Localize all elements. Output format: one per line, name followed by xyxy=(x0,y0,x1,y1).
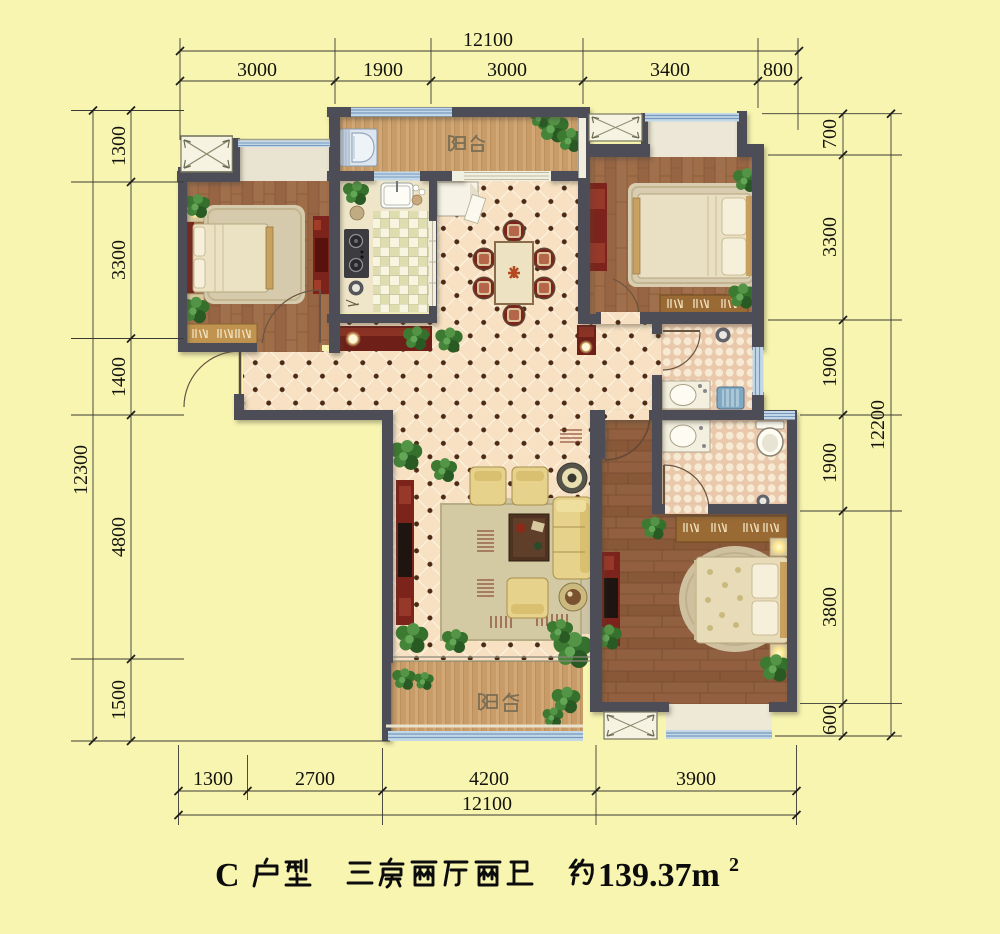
svg-text:12200: 12200 xyxy=(867,400,889,450)
svg-text:3800: 3800 xyxy=(819,587,841,627)
svg-text:4800: 4800 xyxy=(108,517,130,557)
svg-text:1400: 1400 xyxy=(108,357,130,397)
svg-text:3300: 3300 xyxy=(819,217,841,257)
svg-text:3300: 3300 xyxy=(108,240,130,280)
svg-text:C: C xyxy=(215,857,240,894)
svg-text:3000: 3000 xyxy=(487,59,527,81)
svg-text:1300: 1300 xyxy=(193,768,233,790)
svg-text:1300: 1300 xyxy=(108,126,130,166)
svg-text:4200: 4200 xyxy=(469,768,509,790)
svg-text:800: 800 xyxy=(763,59,793,81)
svg-text:600: 600 xyxy=(819,705,841,735)
svg-text:139.37m: 139.37m xyxy=(598,857,720,894)
svg-text:1900: 1900 xyxy=(819,347,841,387)
svg-text:12100: 12100 xyxy=(463,29,513,51)
svg-text:2700: 2700 xyxy=(295,768,335,790)
svg-text:1900: 1900 xyxy=(363,59,403,81)
svg-text:1900: 1900 xyxy=(819,443,841,483)
svg-text:12300: 12300 xyxy=(70,445,92,495)
svg-text:700: 700 xyxy=(819,119,841,149)
svg-text:12100: 12100 xyxy=(462,793,512,815)
svg-text:3900: 3900 xyxy=(676,768,716,790)
svg-text:1500: 1500 xyxy=(108,680,130,720)
svg-text:2: 2 xyxy=(729,854,739,876)
svg-text:3400: 3400 xyxy=(650,59,690,81)
svg-text:3000: 3000 xyxy=(237,59,277,81)
